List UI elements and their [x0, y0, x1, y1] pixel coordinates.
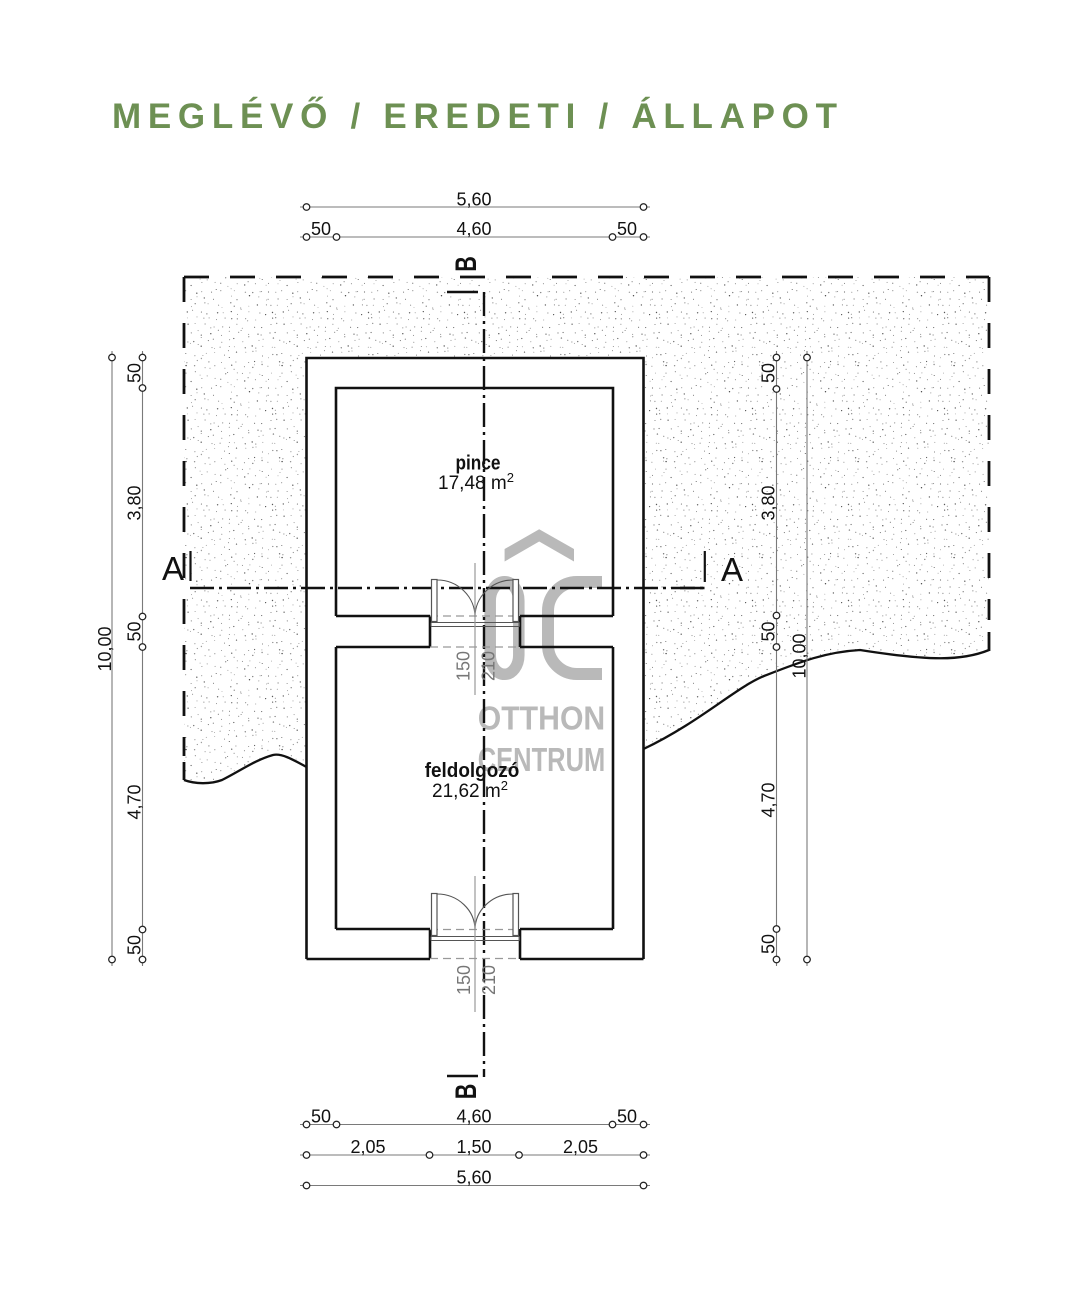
svg-text:2,05: 2,05 [563, 1137, 598, 1157]
svg-text:3,80: 3,80 [759, 485, 779, 520]
svg-text:21,62 m2: 21,62 m2 [432, 778, 508, 802]
svg-text:OTTHON: OTTHON [478, 700, 606, 737]
svg-text:210: 210 [479, 965, 499, 995]
svg-text:150: 150 [454, 651, 474, 681]
svg-text:5,60: 5,60 [456, 190, 491, 210]
svg-text:10,00: 10,00 [790, 633, 810, 678]
svg-text:50: 50 [125, 621, 145, 641]
svg-text:50: 50 [617, 1107, 637, 1127]
svg-text:150: 150 [454, 965, 474, 995]
svg-text:2,05: 2,05 [350, 1137, 385, 1157]
svg-text:50: 50 [125, 935, 145, 955]
svg-text:50: 50 [759, 934, 779, 954]
svg-text:B: B [448, 1084, 482, 1100]
svg-text:4,70: 4,70 [125, 784, 145, 819]
svg-text:210: 210 [479, 651, 499, 681]
svg-text:17,48 m2: 17,48 m2 [438, 470, 514, 494]
svg-text:50: 50 [759, 363, 779, 383]
svg-text:50: 50 [759, 621, 779, 641]
svg-text:B: B [448, 256, 482, 272]
svg-text:50: 50 [311, 219, 331, 239]
svg-text:A: A [162, 550, 184, 587]
svg-text:50: 50 [125, 363, 145, 383]
svg-text:50: 50 [617, 219, 637, 239]
svg-text:1,50: 1,50 [456, 1137, 491, 1157]
svg-text:4,60: 4,60 [456, 219, 491, 239]
svg-text:4,60: 4,60 [456, 1107, 491, 1127]
svg-text:3,80: 3,80 [125, 485, 145, 520]
svg-text:5,60: 5,60 [456, 1168, 491, 1188]
svg-text:A: A [721, 551, 743, 588]
svg-text:4,70: 4,70 [759, 782, 779, 817]
svg-text:10,00: 10,00 [95, 626, 115, 671]
svg-text:pince: pince [456, 453, 501, 475]
svg-text:50: 50 [311, 1107, 331, 1127]
svg-text:MEGLÉVŐ / EREDETI / ÁLLAPOT: MEGLÉVŐ / EREDETI / ÁLLAPOT [112, 96, 837, 136]
